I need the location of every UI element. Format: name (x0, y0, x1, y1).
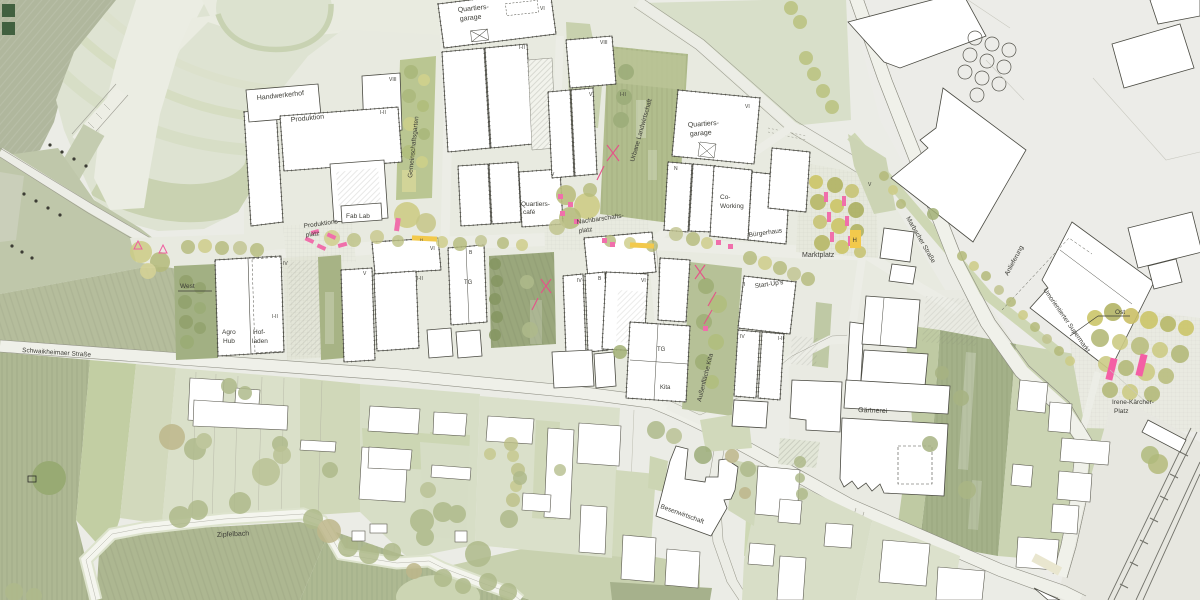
svg-text:West: West (180, 283, 195, 290)
svg-text:Co-: Co- (720, 194, 730, 201)
svg-text:IV: IV (283, 261, 288, 267)
svg-text:I-II: I-II (778, 336, 784, 342)
svg-text:IV: IV (740, 334, 745, 340)
svg-text:VI: VI (540, 6, 545, 12)
svg-text:I-II: I-II (417, 276, 423, 282)
svg-text:I-II: I-II (519, 45, 525, 51)
svg-text:Ost: Ost (1115, 309, 1125, 316)
svg-text:Gärtnerei: Gärtnerei (858, 407, 888, 415)
svg-text:I-II: I-II (272, 314, 278, 320)
svg-text:I-II: I-II (380, 110, 386, 116)
svg-text:I-II: I-II (620, 92, 626, 98)
svg-text:Irene-Kärcher-: Irene-Kärcher- (1112, 399, 1154, 406)
svg-text:Quartiers-: Quartiers- (521, 201, 550, 208)
svg-text:VI: VI (430, 246, 435, 252)
svg-text:laden: laden (252, 338, 268, 345)
svg-text:Hub: Hub (223, 338, 235, 345)
svg-text:TG: TG (464, 280, 473, 286)
svg-text:I: I (744, 282, 745, 288)
svg-text:Fab Lab: Fab Lab (346, 213, 370, 220)
svg-text:café: café (523, 209, 536, 216)
svg-text:N: N (674, 166, 678, 172)
svg-text:TG: TG (657, 347, 666, 353)
svg-text:Marktplatz: Marktplatz (802, 252, 835, 259)
svg-text:H: H (853, 238, 857, 244)
svg-text:Working: Working (720, 203, 744, 210)
svg-text:VIII: VIII (600, 40, 608, 46)
svg-text:VI: VI (745, 104, 750, 110)
svg-text:Agro: Agro (222, 329, 236, 336)
svg-text:VIII: VIII (389, 77, 397, 83)
svg-text:Kita: Kita (660, 385, 671, 391)
svg-text:Hof-: Hof- (253, 329, 265, 336)
svg-text:Platz: Platz (1114, 408, 1128, 415)
svg-text:VI: VI (641, 278, 646, 284)
svg-text:IV: IV (577, 278, 582, 284)
svg-text:H: H (420, 237, 423, 242)
